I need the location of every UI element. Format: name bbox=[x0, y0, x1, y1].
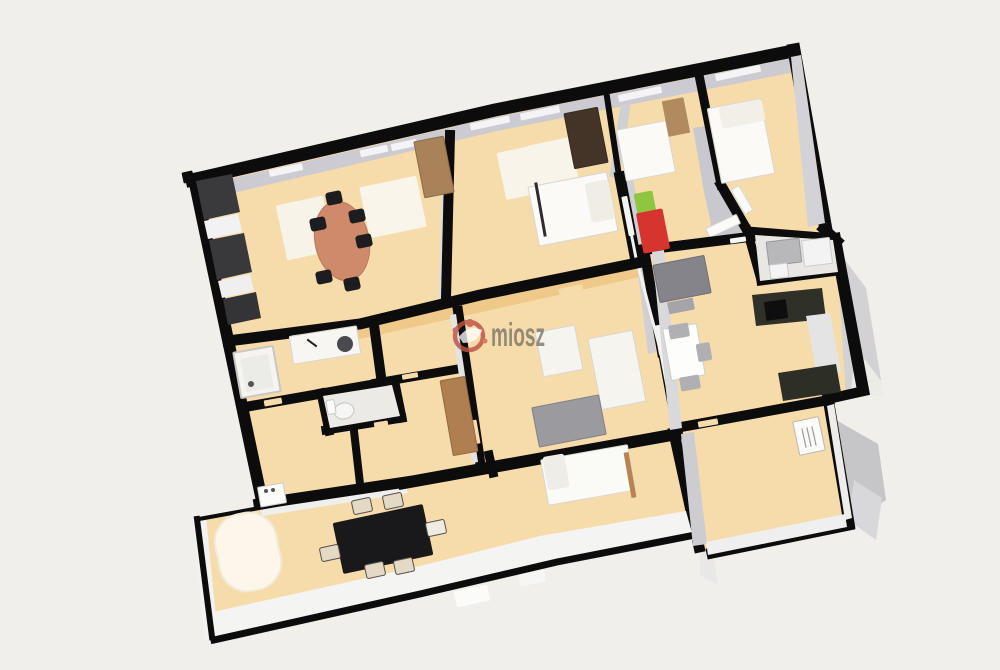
svg-text:miosz: miosz bbox=[491, 316, 545, 353]
